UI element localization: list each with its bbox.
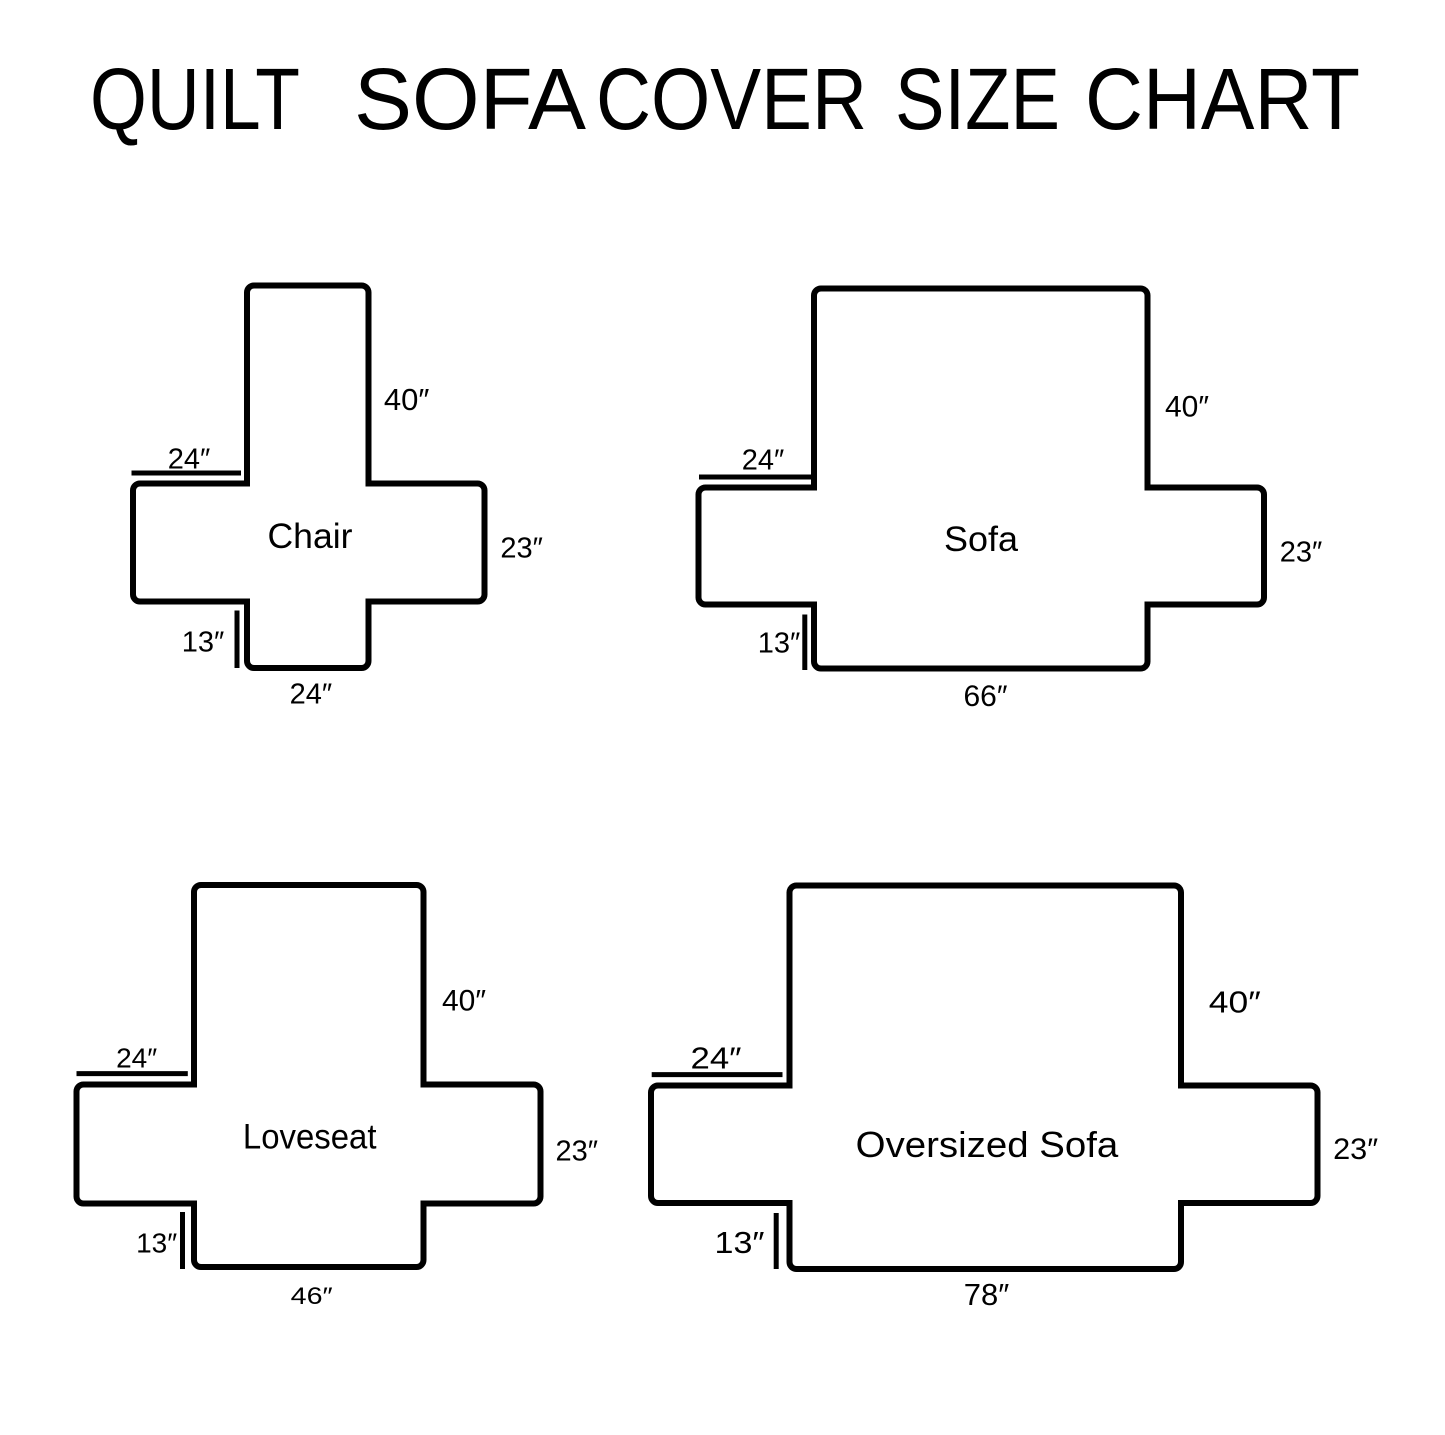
svg-text:24″: 24″ — [290, 678, 333, 710]
svg-text:Sofa: Sofa — [944, 520, 1019, 559]
svg-text:QUILT: QUILT — [90, 51, 300, 148]
svg-text:Oversized Sofa: Oversized Sofa — [856, 1124, 1120, 1165]
svg-text:CHART: CHART — [1085, 51, 1360, 148]
svg-text:24″: 24″ — [742, 445, 785, 477]
svg-text:SIZE: SIZE — [895, 51, 1060, 148]
svg-text:23″: 23″ — [556, 1136, 599, 1168]
svg-text:Loveseat: Loveseat — [243, 1117, 377, 1156]
svg-text:46″: 46″ — [291, 1283, 334, 1310]
svg-text:13″: 13″ — [715, 1225, 765, 1260]
svg-text:23″: 23″ — [1333, 1133, 1378, 1166]
svg-text:SOFA: SOFA — [354, 51, 586, 148]
svg-text:13″: 13″ — [136, 1227, 177, 1258]
svg-text:40″: 40″ — [442, 985, 486, 1018]
svg-text:78″: 78″ — [964, 1277, 1009, 1312]
svg-text:13″: 13″ — [758, 628, 801, 660]
svg-text:24″: 24″ — [691, 1041, 742, 1076]
svg-text:23″: 23″ — [500, 533, 543, 565]
svg-text:COVER: COVER — [596, 51, 867, 148]
svg-text:24″: 24″ — [116, 1043, 157, 1074]
svg-text:40″: 40″ — [1165, 391, 1209, 424]
svg-text:23″: 23″ — [1280, 537, 1323, 569]
svg-text:Chair: Chair — [268, 517, 353, 556]
svg-text:66″: 66″ — [964, 680, 1008, 713]
svg-text:40″: 40″ — [384, 382, 429, 417]
svg-text:13″: 13″ — [182, 627, 225, 659]
svg-text:40″: 40″ — [1209, 985, 1261, 1020]
svg-text:24″: 24″ — [168, 444, 211, 476]
